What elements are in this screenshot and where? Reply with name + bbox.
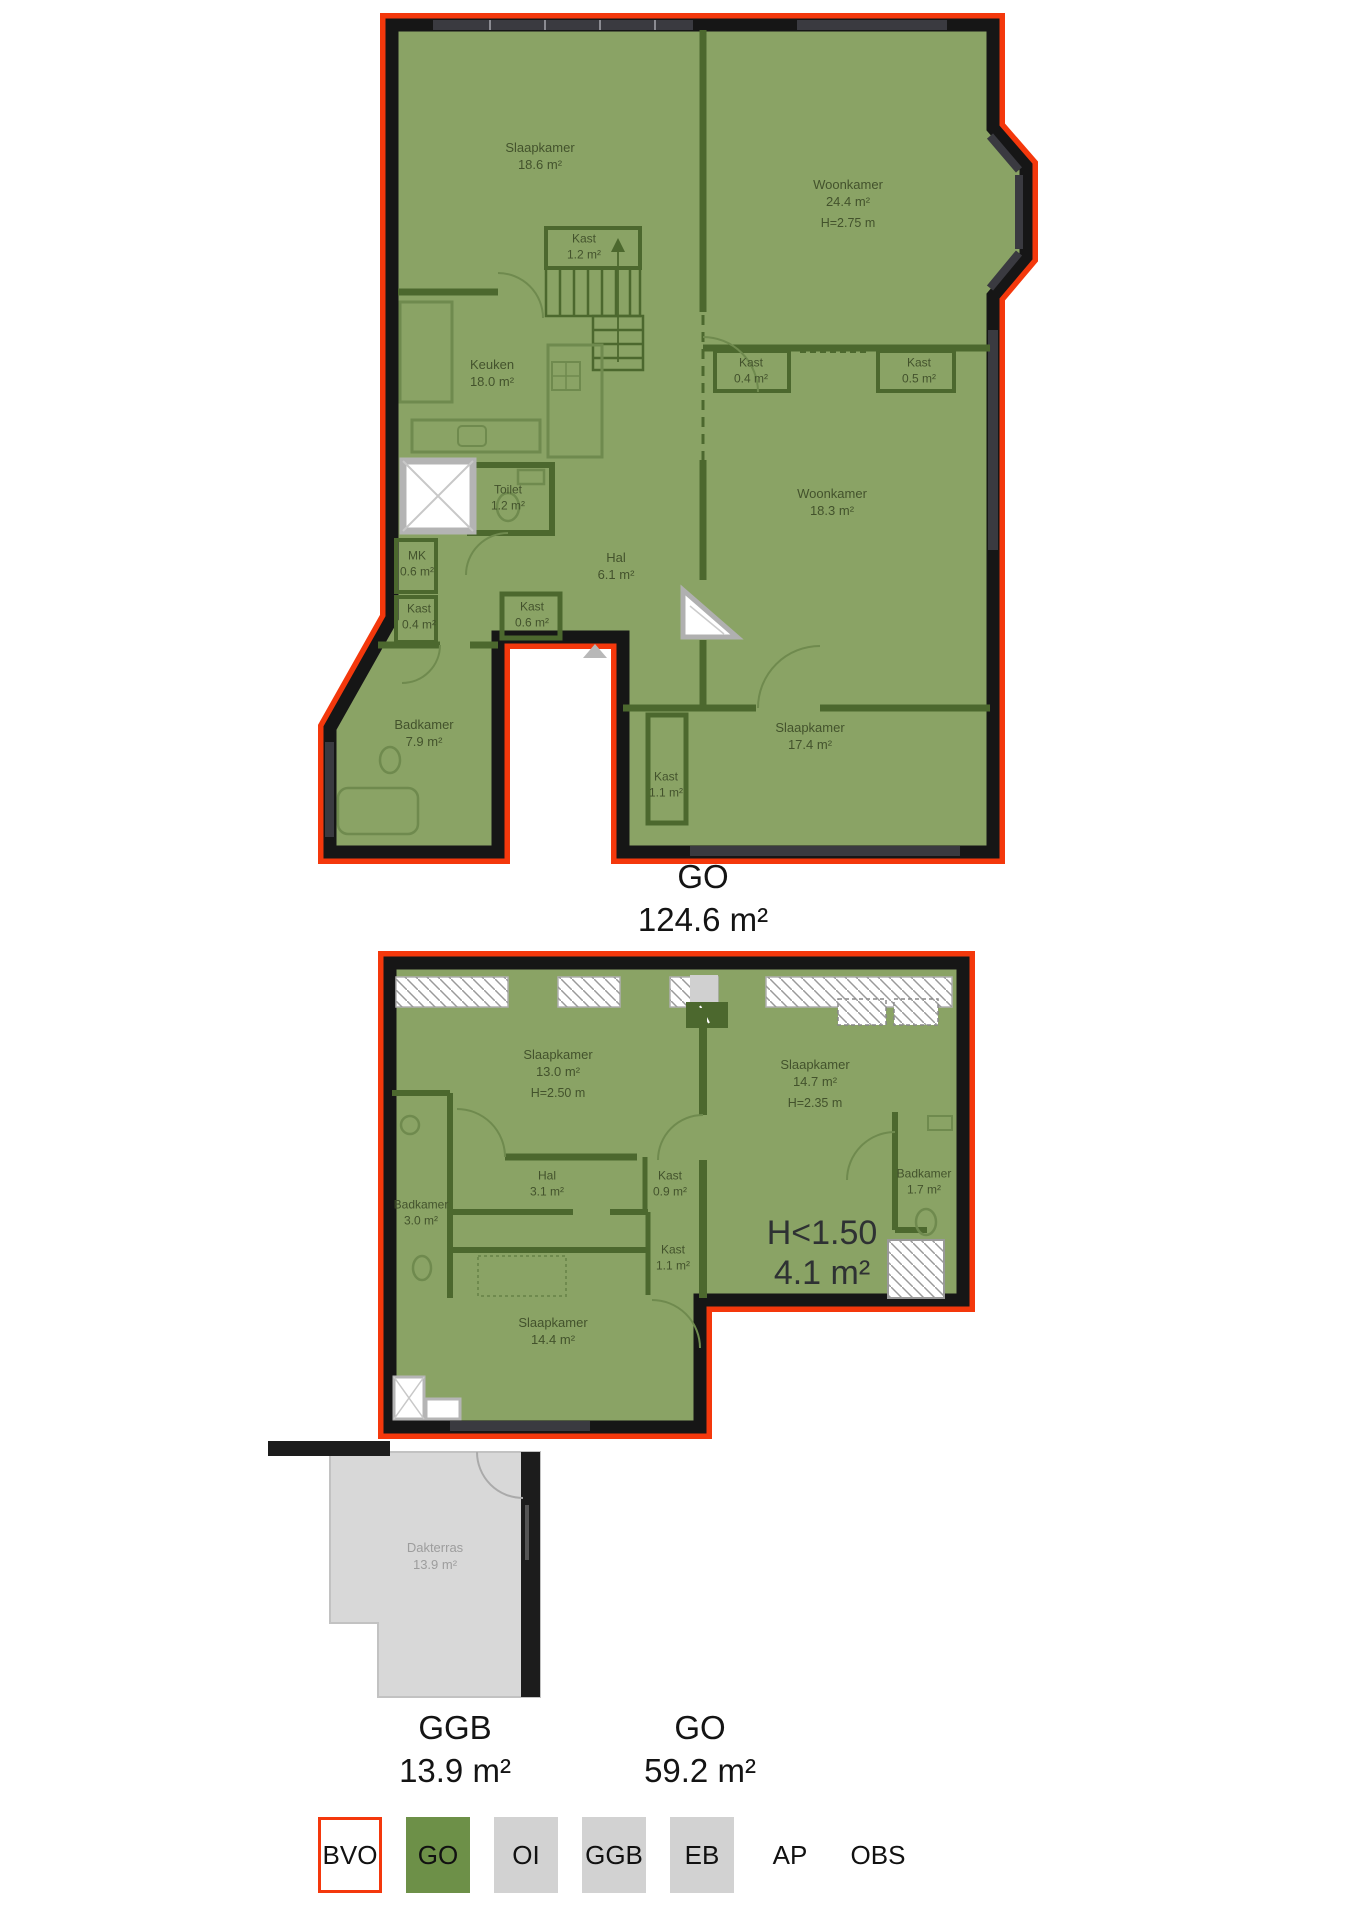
room-name: Kast bbox=[654, 769, 678, 785]
room-label-slaapkamer-13-0: Slaapkamer 13.0 m² H=2.50 m bbox=[523, 1047, 592, 1101]
room-label-kast-0-4-b: Kast 0.4 m² bbox=[402, 601, 436, 632]
room-name: Badkamer bbox=[897, 1166, 952, 1182]
room-area: 13.0 m² bbox=[536, 1064, 580, 1081]
room-area: 18.0 m² bbox=[470, 374, 514, 391]
room-name: Kast bbox=[739, 355, 763, 371]
room-area: 14.4 m² bbox=[531, 1332, 575, 1349]
legend-label: BVO bbox=[323, 1840, 378, 1871]
room-name: Toilet bbox=[494, 482, 522, 498]
room-name: Slaapkamer bbox=[505, 140, 574, 157]
room-area: 1.2 m² bbox=[491, 498, 525, 514]
room-area: 3.1 m² bbox=[530, 1184, 564, 1200]
room-label-kast-0-4-a: Kast 0.4 m² bbox=[734, 355, 768, 386]
room-label-slaapkamer-14-7: Slaapkamer 14.7 m² H=2.35 m bbox=[780, 1057, 849, 1111]
room-name: Slaapkamer bbox=[780, 1057, 849, 1074]
room-area: 6.1 m² bbox=[598, 567, 635, 584]
area-value: 59.2 m² bbox=[644, 1750, 756, 1793]
room-name: Slaapkamer bbox=[523, 1047, 592, 1064]
area-value: 124.6 m² bbox=[638, 899, 768, 942]
room-height: H=2.75 m bbox=[821, 215, 876, 231]
legend-label: EB bbox=[685, 1840, 720, 1871]
room-name: Kast bbox=[520, 599, 544, 615]
area-code: GO bbox=[677, 856, 728, 899]
legend-label: OI bbox=[512, 1840, 539, 1871]
room-name: Kast bbox=[407, 601, 431, 617]
legend-label: OBS bbox=[851, 1840, 906, 1871]
room-label-kast-1-1-a: Kast 1.1 m² bbox=[649, 769, 683, 800]
room-name: Hal bbox=[606, 550, 626, 567]
legend-item-eb: EB bbox=[670, 1817, 734, 1893]
floorplan-drawing bbox=[0, 0, 1358, 1920]
annotation-line1: H<1.50 bbox=[767, 1213, 878, 1253]
annotation-line2: 4.1 m² bbox=[774, 1253, 870, 1293]
room-area: 0.4 m² bbox=[402, 617, 436, 633]
room-label-slaapkamer-18-6: Slaapkamer 18.6 m² bbox=[505, 140, 574, 174]
room-label-badkamer-1-7: Badkamer 1.7 m² bbox=[897, 1166, 952, 1197]
legend-label: GGB bbox=[585, 1840, 643, 1871]
terrace-wall-top bbox=[268, 1441, 390, 1456]
room-area: 3.0 m² bbox=[404, 1213, 438, 1229]
room-height: H=2.50 m bbox=[531, 1085, 586, 1101]
room-label-kast-0-9: Kast 0.9 m² bbox=[653, 1168, 687, 1199]
plan2-window bbox=[450, 1421, 590, 1431]
room-label-woonkamer-18-3: Woonkamer 18.3 m² bbox=[797, 486, 867, 520]
room-area: 1.2 m² bbox=[567, 247, 601, 263]
legend-item-ggb: GGB bbox=[582, 1817, 646, 1893]
legend-item-obs: OBS bbox=[846, 1817, 910, 1893]
room-label-slaapkamer-17-4: Slaapkamer 17.4 m² bbox=[775, 720, 844, 754]
room-label-dakterras: Dakterras 13.9 m² bbox=[407, 1540, 463, 1574]
area-code: GGB bbox=[418, 1707, 491, 1750]
area-code: GO bbox=[674, 1707, 725, 1750]
room-name: MK bbox=[408, 548, 426, 564]
room-area: 14.7 m² bbox=[793, 1074, 837, 1091]
terrace-wall-right-inner bbox=[525, 1505, 529, 1560]
room-area: 0.6 m² bbox=[400, 564, 434, 580]
room-name: Slaapkamer bbox=[775, 720, 844, 737]
floorplan-page: Slaapkamer 18.6 m² Kast 1.2 m² Woonkamer… bbox=[0, 0, 1358, 1920]
low-headroom-annotation: H<1.50 4.1 m² bbox=[767, 1213, 878, 1293]
roof-terrace bbox=[268, 1441, 540, 1697]
room-name: Dakterras bbox=[407, 1540, 463, 1557]
terrace-wall-right bbox=[521, 1452, 540, 1697]
legend: BVO GO OI GGB EB AP OBS bbox=[318, 1817, 910, 1893]
plan2-go-area-label: GO 59.2 m² bbox=[644, 1707, 756, 1793]
room-name: Badkamer bbox=[394, 1197, 449, 1213]
room-area: 1.1 m² bbox=[649, 785, 683, 801]
plan2-ggb-area-label: GGB 13.9 m² bbox=[399, 1707, 511, 1793]
room-label-badkamer-3-0: Badkamer 3.0 m² bbox=[394, 1197, 449, 1228]
room-label-kast-1-2: Kast 1.2 m² bbox=[567, 231, 601, 262]
room-name: Woonkamer bbox=[797, 486, 867, 503]
legend-item-oi: OI bbox=[494, 1817, 558, 1893]
room-label-woonkamer-24-4: Woonkamer 24.4 m² H=2.75 m bbox=[813, 177, 883, 231]
low-headroom-hatch bbox=[888, 1240, 944, 1298]
room-area: 0.9 m² bbox=[653, 1184, 687, 1200]
room-area: 1.1 m² bbox=[656, 1258, 690, 1274]
room-label-badkamer-7-9: Badkamer 7.9 m² bbox=[394, 717, 453, 751]
room-name: Woonkamer bbox=[813, 177, 883, 194]
room-label-slaapkamer-14-4: Slaapkamer 14.4 m² bbox=[518, 1315, 587, 1349]
room-area: 7.9 m² bbox=[406, 734, 443, 751]
room-area: 18.3 m² bbox=[810, 503, 854, 520]
room-area: 17.4 m² bbox=[788, 737, 832, 754]
legend-label: AP bbox=[773, 1840, 808, 1871]
room-height: H=2.35 m bbox=[788, 1095, 843, 1111]
legend-item-go: GO bbox=[406, 1817, 470, 1893]
room-name: Keuken bbox=[470, 357, 514, 374]
legend-item-bvo: BVO bbox=[318, 1817, 382, 1893]
area-value: 13.9 m² bbox=[399, 1750, 511, 1793]
room-label-mk: MK 0.6 m² bbox=[400, 548, 434, 579]
room-area: 0.5 m² bbox=[902, 371, 936, 387]
room-area: 13.9 m² bbox=[413, 1557, 457, 1574]
dakterras-area bbox=[330, 1452, 540, 1697]
room-label-hal-6-1: Hal 6.1 m² bbox=[598, 550, 635, 584]
room-name: Slaapkamer bbox=[518, 1315, 587, 1332]
room-area: 1.7 m² bbox=[907, 1182, 941, 1198]
room-name: Kast bbox=[661, 1242, 685, 1258]
legend-item-ap: AP bbox=[758, 1817, 822, 1893]
room-name: Kast bbox=[572, 231, 596, 247]
room-name: Kast bbox=[658, 1168, 682, 1184]
room-name: Badkamer bbox=[394, 717, 453, 734]
room-area: 24.4 m² bbox=[826, 194, 870, 211]
room-area: 18.6 m² bbox=[518, 157, 562, 174]
room-label-toilet: Toilet 1.2 m² bbox=[491, 482, 525, 513]
room-name: Kast bbox=[907, 355, 931, 371]
room-label-keuken: Keuken 18.0 m² bbox=[470, 357, 514, 391]
room-label-kast-0-6: Kast 0.6 m² bbox=[515, 599, 549, 630]
room-label-hal-3-1: Hal 3.1 m² bbox=[530, 1168, 564, 1199]
room-label-kast-0-5: Kast 0.5 m² bbox=[902, 355, 936, 386]
room-area: 0.4 m² bbox=[734, 371, 768, 387]
room-area: 0.6 m² bbox=[515, 615, 549, 631]
elevator-icon bbox=[403, 461, 473, 531]
room-name: Hal bbox=[538, 1168, 556, 1184]
plan1-area-label: GO 124.6 m² bbox=[638, 856, 768, 942]
legend-label: GO bbox=[418, 1840, 458, 1871]
room-label-kast-1-1-b: Kast 1.1 m² bbox=[656, 1242, 690, 1273]
